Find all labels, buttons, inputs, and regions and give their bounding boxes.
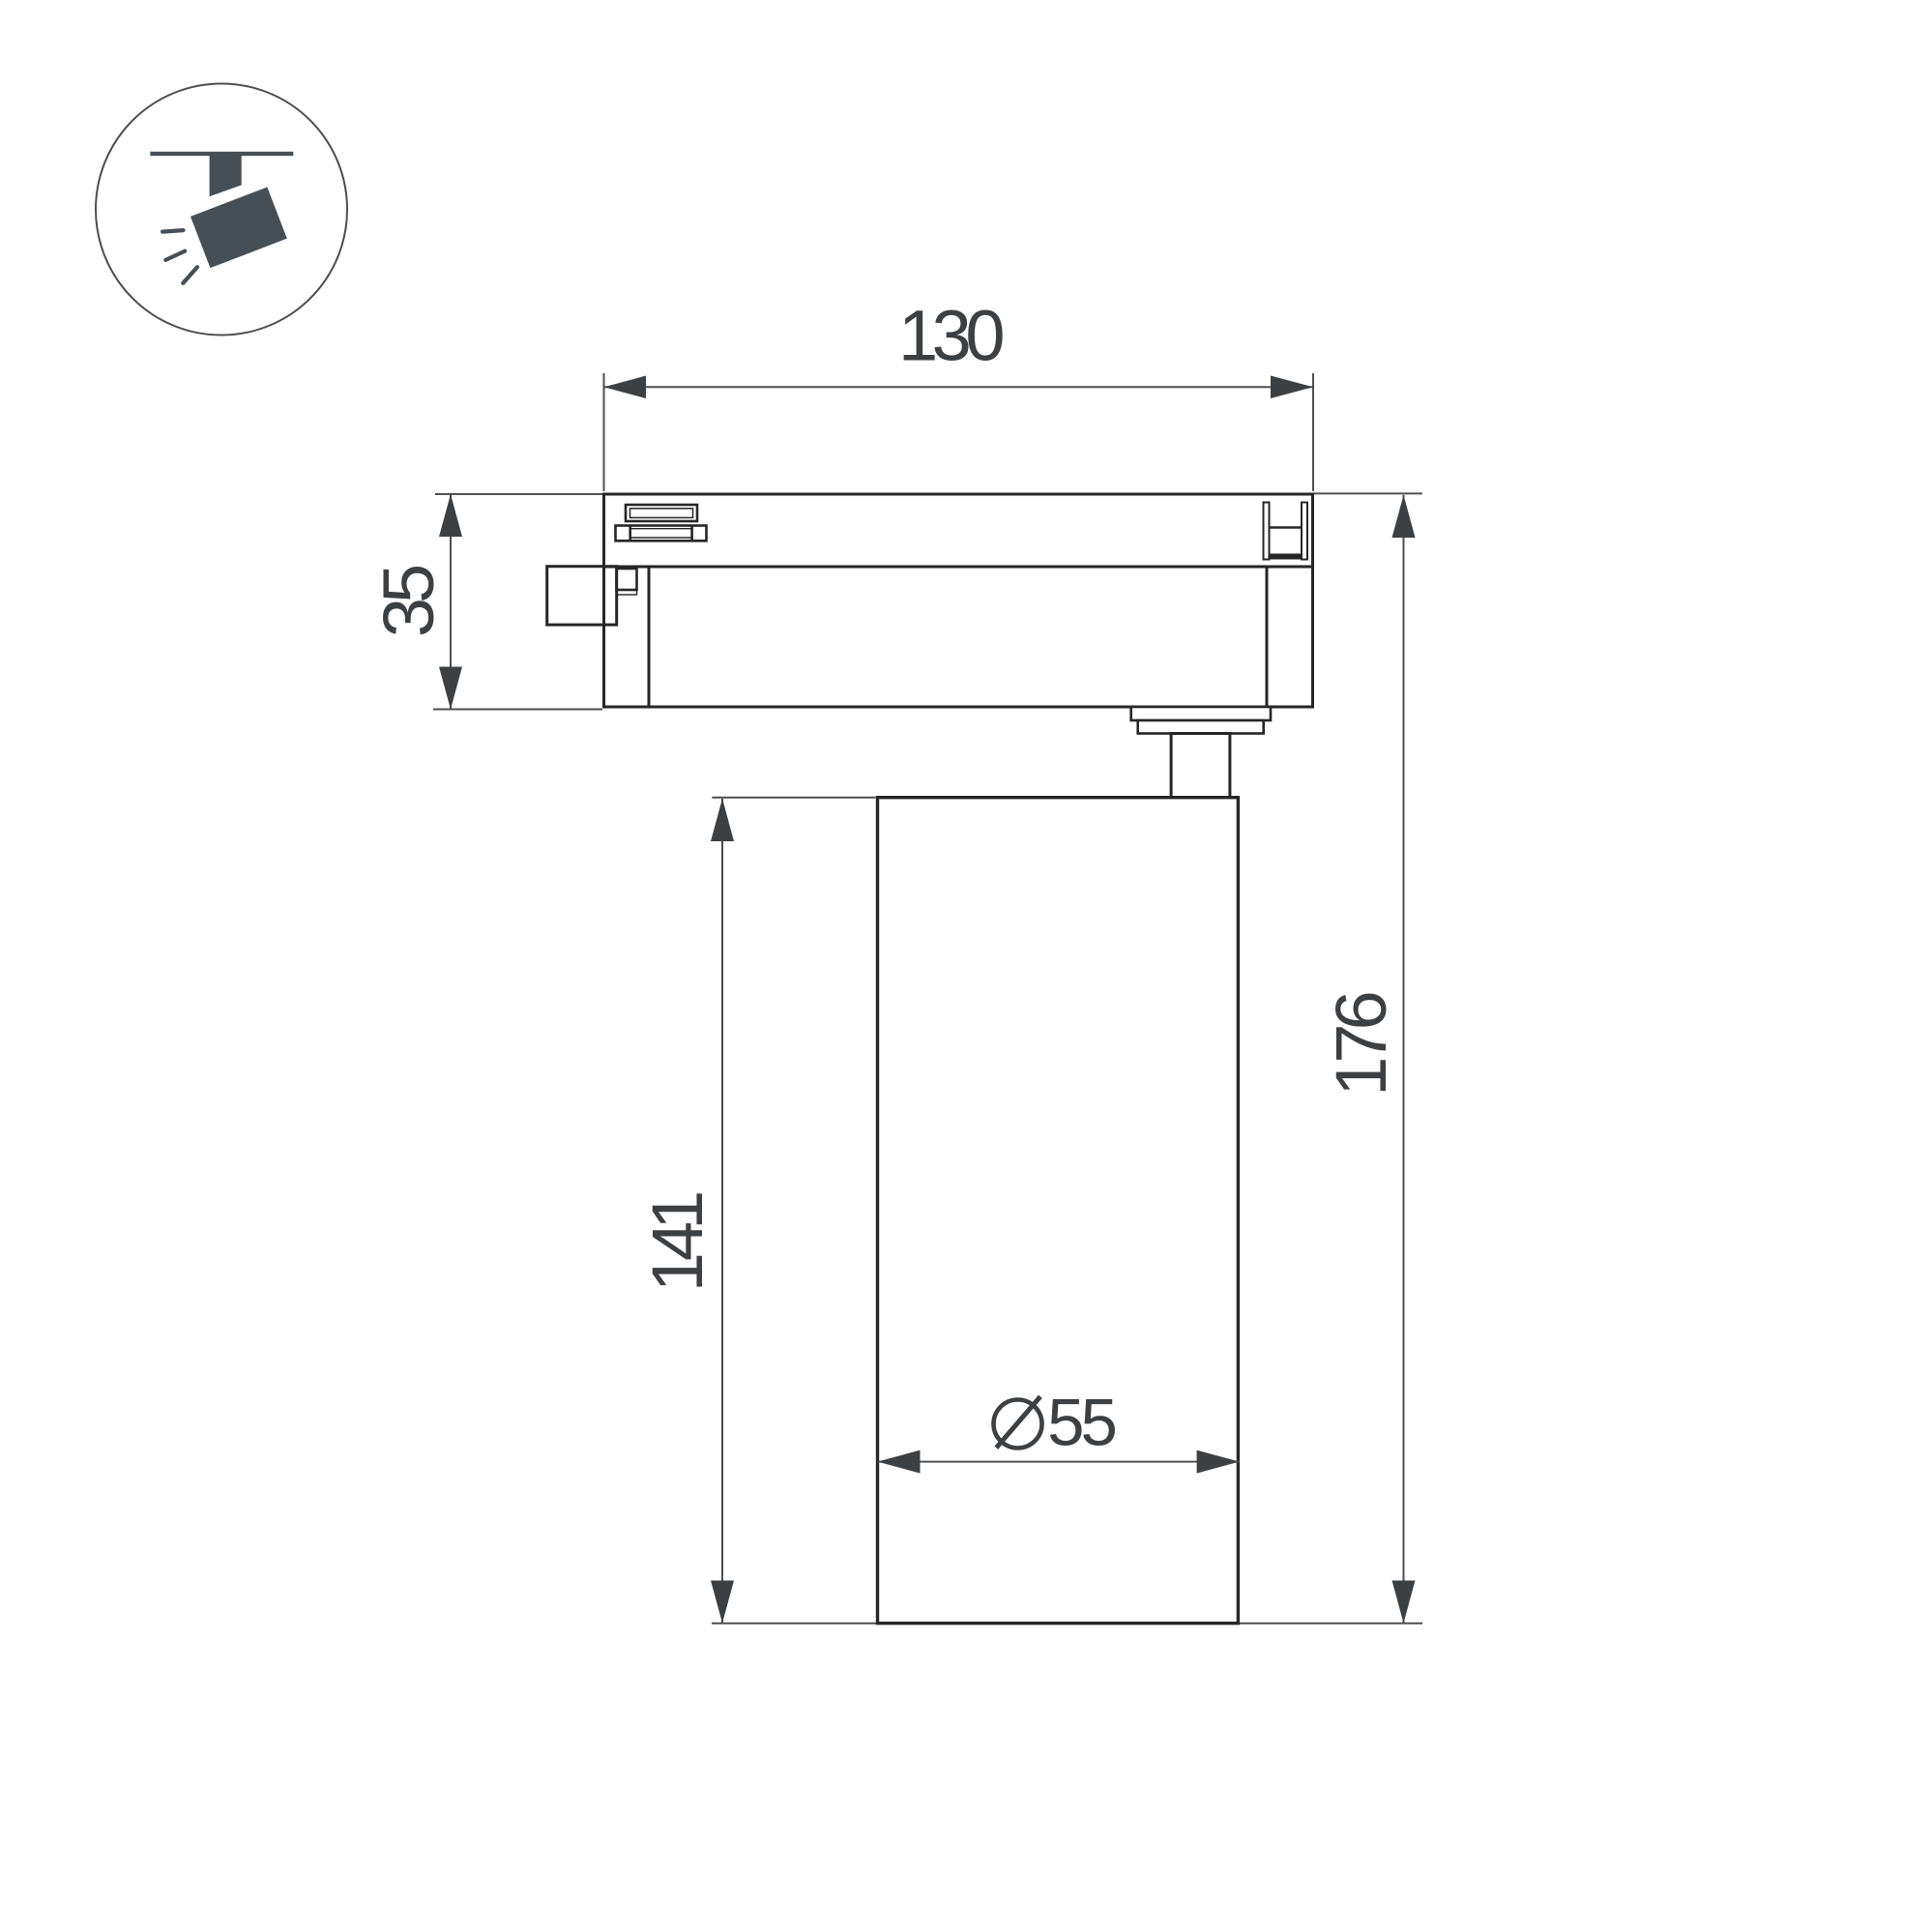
svg-text:141: 141	[637, 1193, 717, 1292]
svg-text:55: 55	[1047, 1386, 1115, 1460]
svg-text:35: 35	[368, 566, 449, 637]
svg-text:176: 176	[1321, 993, 1401, 1096]
svg-text:130: 130	[898, 296, 1003, 376]
